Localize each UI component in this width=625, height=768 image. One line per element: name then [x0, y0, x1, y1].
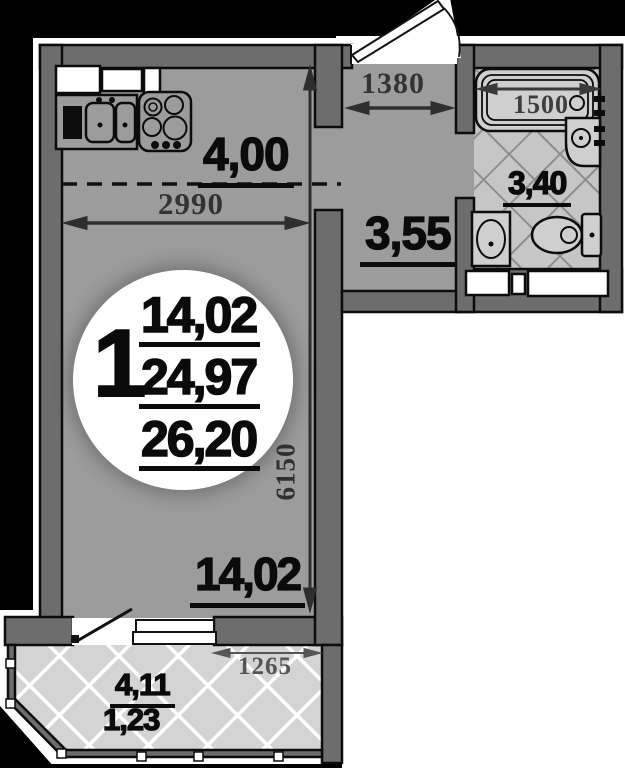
toilet — [532, 214, 601, 256]
wall-bath-top — [458, 45, 622, 68]
wall-room-right — [315, 210, 342, 645]
wall-bottom-left-stub — [5, 617, 73, 645]
room-depth-dimension: 6150 — [273, 424, 300, 520]
window — [136, 620, 214, 632]
hallway-width-dimension: 1380 — [361, 69, 425, 99]
bathroom-area-label: 3,40 — [503, 167, 571, 199]
wall-hall-bottom — [342, 291, 458, 312]
hallway-area-label: 3,55 — [360, 210, 456, 256]
wall-top-main — [40, 45, 352, 68]
balcony-coeff-area-label: 1,23 — [103, 704, 159, 735]
balcony-door-opening — [72, 618, 136, 645]
corner-washbasin — [566, 118, 605, 166]
total-area-value: 24,97 — [139, 354, 260, 409]
unit-info-badge: 1 14,02 24,97 26,20 — [73, 270, 293, 490]
living-area-value: 14,02 — [139, 292, 260, 347]
balcony-width-dimension: 1265 — [238, 654, 292, 679]
kitchen-sink — [56, 95, 137, 149]
balcony-area-label: 4,11 — [110, 669, 175, 700]
room-area-label: 14,02 — [190, 551, 305, 597]
wall-balcony-right — [322, 645, 342, 763]
bathtub-length-dimension: 1500 — [513, 92, 569, 118]
entry-door — [351, 0, 461, 64]
total-with-balcony-value: 26,20 — [139, 416, 260, 471]
wall-bath-left-upper — [456, 45, 474, 133]
room-hall-passage — [315, 127, 342, 210]
floor-plan: 1 14,02 24,97 26,20 4,00 2990 1380 3,55 … — [0, 0, 625, 768]
unit-areas: 14,02 24,97 26,20 — [139, 292, 260, 478]
bathroom-door-opening — [456, 133, 474, 198]
stove — [139, 92, 191, 151]
kitchen-width-dimension: 2990 — [158, 188, 224, 219]
kitchen-area-label: 4,00 — [198, 131, 294, 177]
kitchen-fixtures — [56, 92, 191, 151]
washbasin — [472, 212, 510, 266]
wall-room-right-stub — [315, 45, 342, 127]
